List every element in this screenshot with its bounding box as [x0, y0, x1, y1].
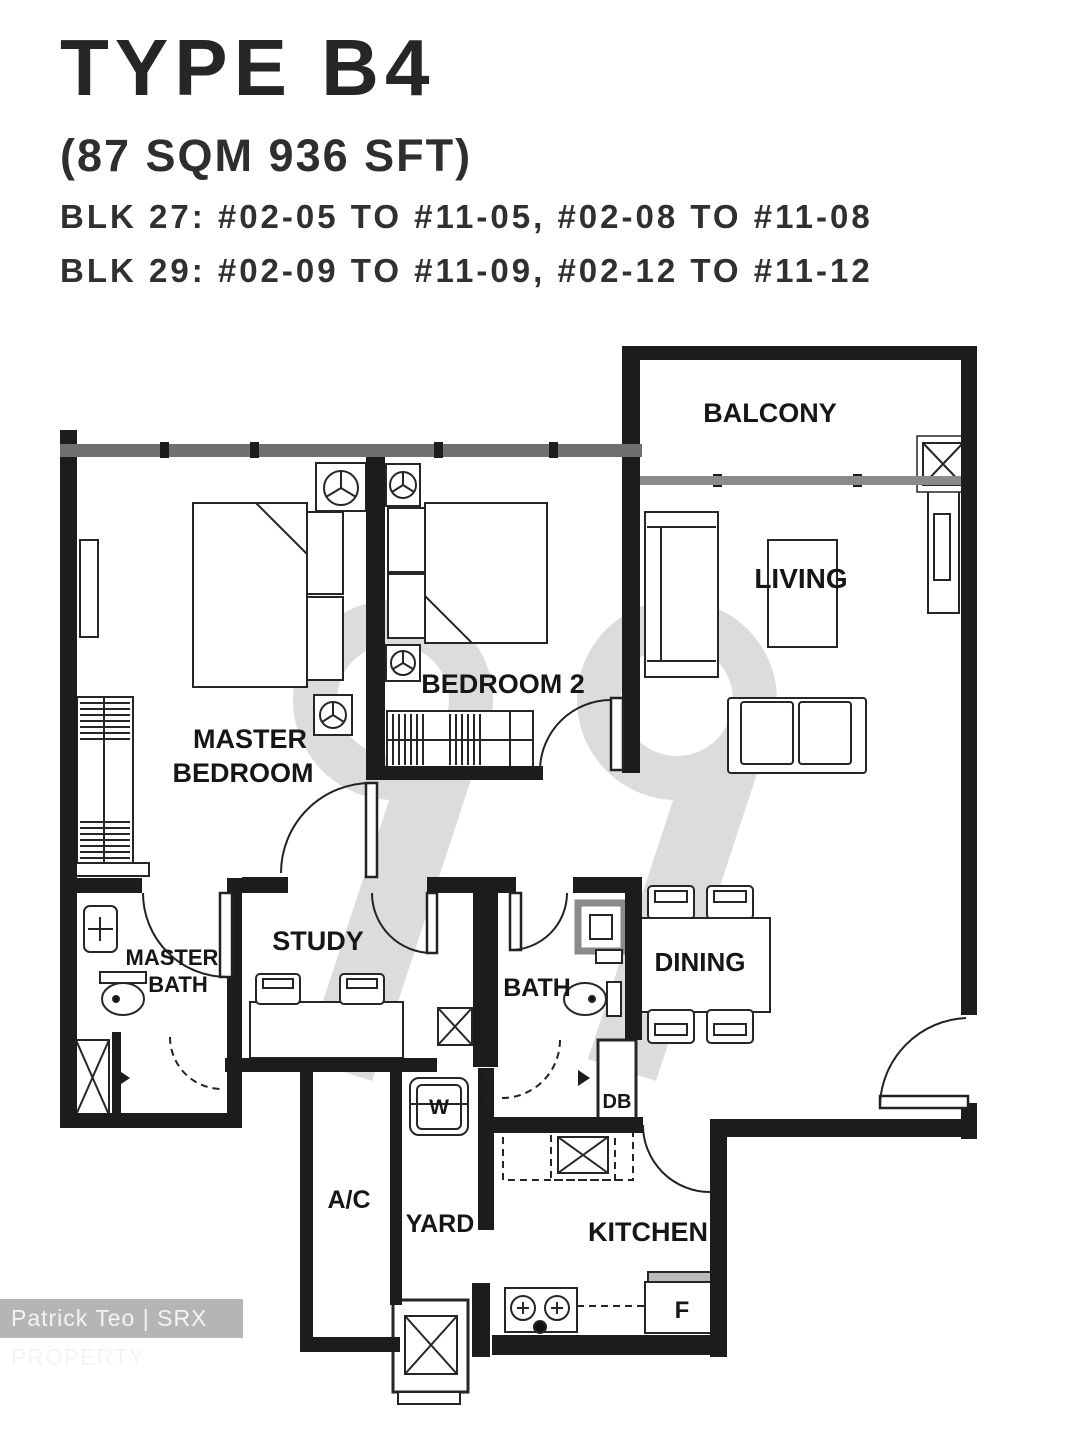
master-wardrobe — [75, 697, 149, 876]
bedroom2-label: BEDROOM 2 — [421, 669, 585, 699]
bath-wc — [564, 982, 621, 1016]
bath-door — [510, 893, 567, 950]
master-bath-sink — [84, 906, 117, 952]
lift-shaft — [393, 1300, 468, 1404]
master-window-panel — [80, 540, 98, 637]
washer-label: W — [429, 1096, 449, 1119]
study-ac-ledge-icon — [438, 1008, 472, 1045]
master-bed — [193, 503, 343, 687]
balcony-label: BALCONY — [703, 398, 837, 428]
entrance-door — [880, 1018, 968, 1108]
master-bedroom-label-line1: MASTER — [193, 724, 307, 754]
service-passage-door — [502, 1040, 560, 1098]
window-walls — [60, 442, 961, 485]
db-label: DB — [603, 1091, 632, 1113]
study-label: STUDY — [272, 926, 364, 956]
master-bedroom-label-line2: BEDROOM — [173, 758, 314, 788]
master-bath-label-line1: MASTER — [126, 945, 219, 970]
agent-credit-watermark: Patrick Teo | SRX PROPERTY — [0, 1299, 243, 1338]
master-bath-label-line2: BATH — [148, 972, 207, 997]
bath-shower — [578, 903, 624, 963]
master-bath-shower-door — [170, 1037, 222, 1089]
kitchen-label: KITCHEN — [588, 1217, 708, 1247]
floor-plan: BALCONY LIVING MASTER BEDROOM BEDROOM 2 … — [0, 0, 1074, 1440]
kitchen-stove — [505, 1288, 577, 1333]
bedroom2-bed — [388, 503, 547, 643]
tv-console — [928, 490, 959, 613]
living-loveseat — [728, 698, 866, 773]
yard-label: YARD — [406, 1210, 475, 1238]
master-bedroom-door — [281, 783, 377, 877]
living-label: LIVING — [754, 563, 847, 594]
bedroom2-wardrobe — [387, 711, 533, 768]
living-sofa — [645, 512, 718, 677]
ac-ledge-label: A/C — [327, 1186, 370, 1214]
master-bath-shower-ledge-icon — [76, 1040, 109, 1115]
study-desk — [250, 974, 403, 1058]
kitchen-door — [643, 1125, 710, 1192]
bath-label: BATH — [503, 974, 571, 1002]
walls-layer — [60, 346, 977, 1357]
dining-label: DINING — [655, 947, 746, 977]
floorplan-page: TYPE B4 (87 SQM 936 SFT) BLK 27: #02-05 … — [0, 0, 1074, 1440]
fridge-label: F — [675, 1297, 690, 1324]
master-bath-wc — [100, 972, 146, 1015]
